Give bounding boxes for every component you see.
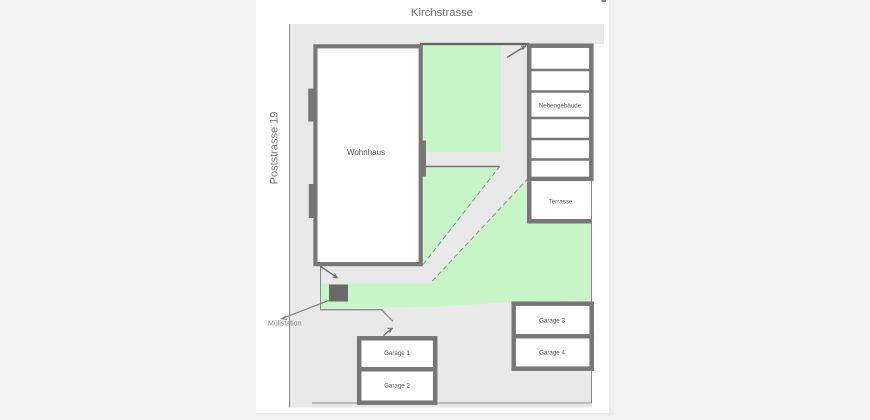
svg-text:Wohnhaus: Wohnhaus — [347, 148, 385, 157]
svg-text:Garage 4: Garage 4 — [539, 350, 565, 357]
svg-text:Garage 1: Garage 1 — [384, 350, 410, 357]
svg-text:Kirchstrasse: Kirchstrasse — [411, 7, 473, 19]
svg-text:Terrasse: Terrasse — [549, 199, 573, 206]
svg-text:Müllstation: Müllstation — [268, 321, 302, 328]
svg-text:Garage 2: Garage 2 — [384, 383, 410, 390]
svg-text:Nebengebäude: Nebengebäude — [539, 103, 582, 110]
svg-text:Poststrasse 19: Poststrasse 19 — [269, 112, 281, 185]
svg-text:Garage 3: Garage 3 — [539, 318, 565, 325]
